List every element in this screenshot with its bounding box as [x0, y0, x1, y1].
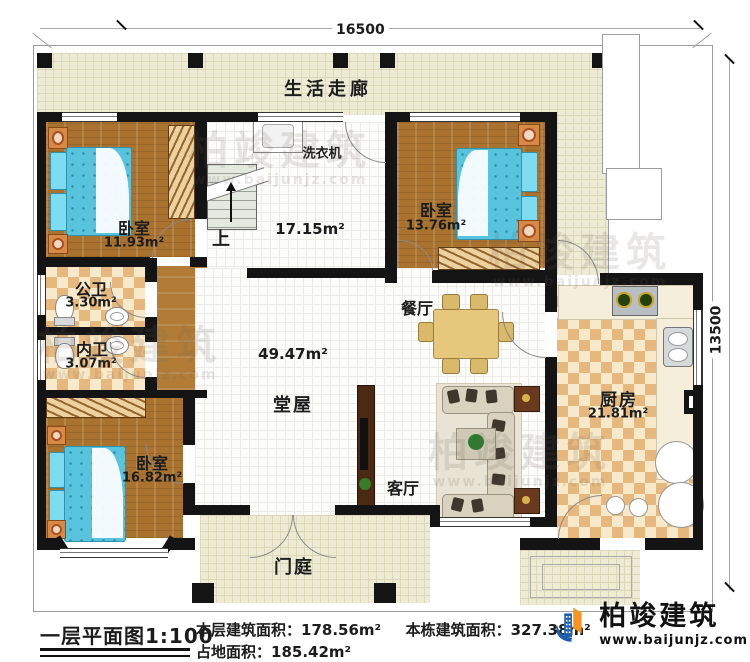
- bedroom2-name: 卧室: [420, 197, 452, 221]
- wall: [37, 380, 46, 540]
- wall: [545, 283, 557, 312]
- stair-arrow-head: [226, 182, 236, 191]
- window: [37, 275, 46, 315]
- coffee-table-plant: [468, 434, 484, 450]
- dimension-height: 13500: [708, 302, 724, 359]
- sofa-pillow: [465, 388, 478, 402]
- washing-machine-lid: [262, 124, 294, 148]
- dining-label: 餐厅: [401, 295, 433, 319]
- window: [258, 112, 343, 122]
- bay-window: [60, 548, 168, 558]
- window: [62, 112, 117, 122]
- dining-chair: [418, 322, 434, 342]
- dining-chair: [442, 294, 460, 310]
- title-underline: [40, 655, 190, 657]
- logo-text: 柏竣建筑 www.baijunjz.com: [599, 603, 748, 648]
- tv: [360, 418, 368, 470]
- title-underline: [40, 648, 190, 651]
- building-area-label: 本栋建筑面积：: [406, 621, 511, 639]
- wardrobe: [46, 396, 146, 418]
- nightstand: [47, 426, 66, 445]
- bedroom2-area: 13.76m²: [406, 219, 466, 234]
- wall: [385, 270, 397, 283]
- kitchen-stool: [629, 498, 648, 517]
- hall-area: 49.47m²: [258, 345, 328, 363]
- window: [37, 340, 46, 380]
- floor-plan-canvas: 生活走廊 洗衣机 17.15m² 上 卧室 11.93m² 卧室 13.76m²…: [0, 0, 750, 662]
- floor-area-label: 本层建筑面积：: [196, 621, 301, 639]
- wall: [195, 112, 207, 219]
- stair-hall-area: 17.15m²: [275, 220, 345, 238]
- column: [188, 53, 203, 68]
- stove-burner: [616, 292, 632, 308]
- side-table-lamp: [522, 394, 530, 402]
- wall: [145, 377, 157, 398]
- dining-chair: [470, 358, 488, 374]
- wall: [335, 505, 430, 515]
- wall: [645, 538, 703, 550]
- wall: [385, 112, 397, 278]
- porch-column: [192, 583, 214, 603]
- wardrobe: [168, 125, 195, 219]
- wall: [37, 390, 207, 398]
- wall: [545, 112, 557, 283]
- floor-area-value: 178.56m²: [301, 621, 381, 639]
- bed-pillow: [50, 152, 67, 190]
- nightstand: [518, 220, 540, 242]
- sink-bowl: [668, 348, 688, 362]
- wall: [117, 112, 258, 122]
- bed-pillow: [50, 193, 67, 231]
- wall: [145, 258, 157, 282]
- column: [37, 53, 52, 68]
- logo-company: 柏竣建筑: [599, 603, 748, 630]
- dining-table: [433, 309, 499, 359]
- wall: [600, 273, 703, 285]
- wall: [693, 385, 703, 538]
- wall: [520, 538, 600, 550]
- public-bath-area: 3.30m²: [65, 296, 116, 311]
- column: [380, 53, 395, 68]
- logo: 柏竣建筑 www.baijunjz.com: [552, 594, 748, 656]
- plan-title: 一层平面图1:100: [40, 620, 214, 649]
- sofa-pillow: [485, 389, 497, 403]
- chimney-block: [602, 34, 640, 174]
- stairs-up-label: 上: [212, 225, 232, 251]
- bedroom1-area: 11.93m²: [104, 236, 164, 251]
- wall: [693, 273, 703, 310]
- land-area-value: 185.42m²: [271, 643, 351, 661]
- wall: [145, 317, 157, 342]
- side-table-lamp: [522, 496, 530, 504]
- sofa-pillow: [447, 389, 460, 404]
- patio-step: [542, 564, 620, 590]
- sofa-pillow: [491, 473, 505, 485]
- bed-pillow: [49, 452, 65, 488]
- wall: [190, 257, 207, 267]
- dimension-line-right: [729, 60, 730, 590]
- kitchen-stool: [606, 496, 625, 515]
- stair-arrow-shaft: [230, 190, 232, 222]
- wall: [530, 517, 557, 527]
- wall: [37, 122, 46, 275]
- wall: [183, 398, 195, 445]
- wall: [432, 270, 545, 283]
- stove-burner: [638, 292, 654, 308]
- bedroom3-area: 16.82m²: [122, 471, 182, 486]
- hall-name: 堂屋: [273, 391, 313, 417]
- wall: [545, 357, 557, 527]
- nightstand: [48, 234, 68, 254]
- toilet-tank: [54, 317, 75, 326]
- wall: [430, 505, 440, 527]
- wardrobe: [438, 247, 540, 270]
- dining-chair: [442, 358, 460, 374]
- sink-bowl: [668, 332, 688, 346]
- porch-column: [374, 583, 396, 603]
- land-area-line: 占地面积：185.42m²: [196, 641, 351, 662]
- wall: [37, 112, 62, 122]
- floor-area-line: 本层建筑面积：178.56m² 本栋建筑面积：327.38m²: [196, 619, 591, 640]
- window: [440, 517, 530, 527]
- porch-label: 门庭: [274, 553, 314, 579]
- logo-website: www.baijunjz.com: [599, 633, 748, 648]
- chimney-block: [606, 168, 662, 220]
- wall: [37, 257, 150, 267]
- private-bath-area: 3.07m²: [65, 357, 116, 372]
- dimension-width: 16500: [332, 22, 389, 38]
- sofa-pillow: [471, 498, 484, 513]
- dining-chair: [470, 294, 488, 310]
- window: [693, 310, 703, 385]
- washer-label: 洗衣机: [302, 143, 341, 162]
- wall: [247, 268, 385, 278]
- land-area-label: 占地面积：: [196, 643, 271, 661]
- kitchen-area: 21.81m²: [588, 407, 648, 422]
- plant: [359, 478, 371, 490]
- wall: [37, 327, 145, 335]
- bed-pillow: [521, 152, 538, 192]
- column: [333, 53, 348, 68]
- nightstand: [48, 127, 68, 149]
- living-label: 客厅: [387, 475, 419, 499]
- kitchen-round-table: [655, 441, 698, 484]
- logo-icon: [552, 599, 593, 651]
- wall: [183, 505, 250, 515]
- nightstand: [518, 124, 540, 146]
- window: [410, 112, 520, 122]
- corridor-label: 生活走廊: [284, 75, 372, 101]
